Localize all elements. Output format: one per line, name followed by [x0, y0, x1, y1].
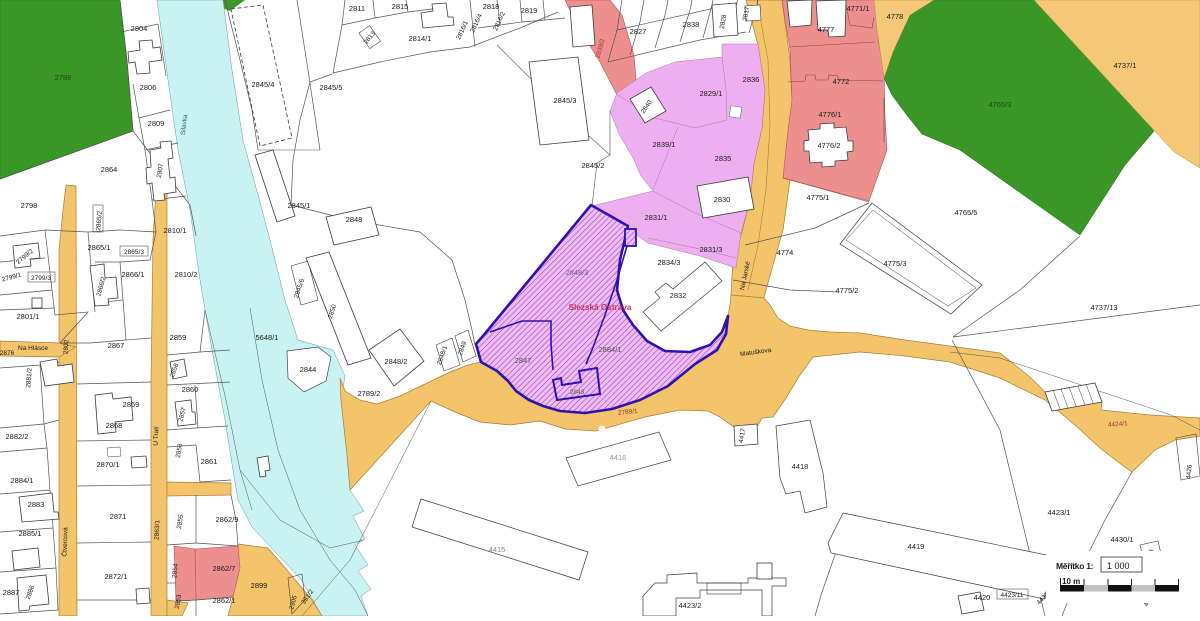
- svg-text:2819: 2819: [521, 6, 538, 15]
- svg-text:4430/1: 4430/1: [1111, 535, 1134, 544]
- svg-text:2845/2: 2845/2: [582, 161, 605, 170]
- svg-text:4420: 4420: [974, 593, 991, 602]
- svg-text:4423/1: 4423/1: [1048, 508, 1071, 517]
- svg-text:2802: 2802: [63, 339, 71, 354]
- svg-text:2845/1: 2845/1: [288, 201, 311, 210]
- svg-text:2865/1: 2865/1: [88, 243, 111, 252]
- svg-text:10 m: 10 m: [1062, 577, 1080, 586]
- svg-text:2844: 2844: [300, 365, 317, 374]
- svg-text:4418: 4418: [792, 462, 809, 471]
- svg-text:2798: 2798: [21, 201, 38, 210]
- svg-text:U Tratí: U Tratí: [153, 426, 161, 446]
- svg-text:2848/3: 2848/3: [566, 268, 589, 277]
- svg-text:4765/3: 4765/3: [989, 100, 1012, 109]
- svg-text:2854: 2854: [171, 563, 179, 578]
- svg-text:2831/1: 2831/1: [645, 213, 668, 222]
- svg-text:2868: 2868: [106, 421, 123, 430]
- svg-text:4774: 4774: [777, 248, 794, 257]
- svg-text:4771/1: 4771/1: [847, 4, 870, 13]
- svg-text:2801/1: 2801/1: [17, 312, 40, 321]
- svg-text:2830: 2830: [714, 195, 731, 204]
- svg-text:2788: 2788: [55, 73, 72, 82]
- svg-text:4416: 4416: [610, 453, 627, 462]
- svg-text:2814/1: 2814/1: [409, 34, 432, 43]
- svg-text:4775/3: 4775/3: [884, 259, 907, 268]
- svg-text:2806: 2806: [140, 83, 157, 92]
- svg-text:4776/1: 4776/1: [819, 110, 842, 119]
- svg-text:2835: 2835: [715, 154, 732, 163]
- svg-text:4776/2: 4776/2: [818, 141, 841, 150]
- svg-text:2870/1: 2870/1: [97, 460, 120, 469]
- svg-text:2845/4: 2845/4: [252, 80, 275, 89]
- svg-text:2862/7: 2862/7: [213, 564, 236, 573]
- svg-text:2862/1: 2862/1: [213, 596, 236, 605]
- svg-text:2884/1: 2884/1: [599, 345, 622, 354]
- svg-text:4765/5: 4765/5: [955, 208, 978, 217]
- svg-text:2899: 2899: [251, 581, 268, 590]
- svg-text:2832: 2832: [670, 291, 687, 300]
- svg-text:2876: 2876: [0, 350, 15, 357]
- svg-text:Na Hlásce: Na Hlásce: [18, 345, 48, 352]
- svg-text:2866/1: 2866/1: [122, 270, 145, 279]
- svg-text:2809: 2809: [148, 119, 165, 128]
- svg-text:2860: 2860: [182, 385, 199, 394]
- svg-text:2869: 2869: [123, 400, 140, 409]
- svg-text:Slezská Ostrava: Slezská Ostrava: [569, 303, 632, 312]
- svg-text:4775/2: 4775/2: [836, 286, 859, 295]
- svg-text:2847: 2847: [515, 356, 532, 365]
- svg-text:2882/2: 2882/2: [6, 432, 29, 441]
- svg-text:2865/3: 2865/3: [124, 249, 144, 256]
- svg-text:4419: 4419: [908, 542, 925, 551]
- svg-text:2831/3: 2831/3: [700, 245, 723, 254]
- svg-text:2843: 2843: [570, 389, 585, 396]
- svg-text:2818: 2818: [483, 2, 500, 11]
- svg-text:4423/11: 4423/11: [1000, 592, 1023, 599]
- svg-text:5648/1: 5648/1: [256, 333, 279, 342]
- svg-text:4737/1: 4737/1: [1114, 61, 1137, 70]
- svg-text:2789/2: 2789/2: [358, 389, 381, 398]
- svg-text:2799/3: 2799/3: [31, 275, 51, 282]
- svg-text:2859: 2859: [170, 333, 187, 342]
- svg-text:2862/9: 2862/9: [216, 515, 239, 524]
- svg-text:2810/1: 2810/1: [164, 226, 187, 235]
- svg-text:2839/1: 2839/1: [653, 140, 676, 149]
- svg-text:4423/2: 4423/2: [679, 601, 702, 610]
- svg-text:2864: 2864: [101, 165, 118, 174]
- svg-text:2867: 2867: [108, 341, 125, 350]
- svg-text:2804: 2804: [131, 24, 148, 33]
- svg-text:2885/1: 2885/1: [19, 529, 42, 538]
- svg-text:2884/1: 2884/1: [11, 476, 34, 485]
- svg-text:4424/1: 4424/1: [1108, 420, 1129, 428]
- svg-text:2838: 2838: [683, 20, 700, 29]
- svg-text:2811: 2811: [349, 4, 365, 13]
- svg-text:2863/1: 2863/1: [154, 520, 162, 540]
- svg-text:2848/2: 2848/2: [385, 357, 408, 366]
- svg-text:2845/3: 2845/3: [554, 96, 577, 105]
- svg-text:4415: 4415: [489, 545, 506, 554]
- svg-text:2834/3: 2834/3: [658, 258, 681, 267]
- svg-text:2845/5: 2845/5: [320, 83, 343, 92]
- svg-text:4426: 4426: [1185, 464, 1193, 479]
- svg-text:4777: 4777: [818, 25, 835, 34]
- svg-text:2810/2: 2810/2: [175, 270, 198, 279]
- svg-text:4778: 4778: [887, 12, 904, 21]
- svg-text:2887: 2887: [3, 588, 20, 597]
- svg-text:4772: 4772: [833, 77, 850, 86]
- svg-text:Měřítko 1:: Měřítko 1:: [1056, 561, 1094, 571]
- svg-text:2815: 2815: [392, 2, 409, 11]
- svg-text:1 000: 1 000: [1107, 561, 1130, 571]
- svg-text:2872/1: 2872/1: [105, 572, 128, 581]
- svg-text:2861: 2861: [201, 457, 218, 466]
- svg-text:2827: 2827: [630, 27, 647, 36]
- svg-text:2871: 2871: [110, 512, 127, 521]
- svg-text:2848: 2848: [346, 215, 363, 224]
- svg-text:2829/1: 2829/1: [700, 89, 723, 98]
- svg-text:4775/1: 4775/1: [807, 193, 830, 202]
- svg-text:4737/13: 4737/13: [1090, 303, 1117, 312]
- svg-text:2836: 2836: [743, 75, 760, 84]
- svg-text:2883: 2883: [28, 500, 45, 509]
